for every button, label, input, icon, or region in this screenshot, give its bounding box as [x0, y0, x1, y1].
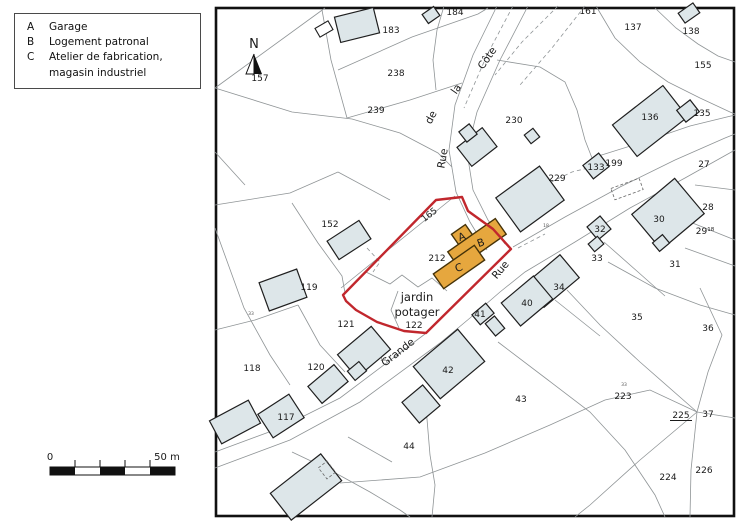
parcel-label-239: 239 [367, 106, 384, 116]
parcel-label-37: 37 [702, 410, 713, 420]
legend-label: Atelier de fabrication, magasin industri… [49, 50, 192, 80]
parcel-label-183: 183 [382, 26, 399, 36]
parcel-label-212: 212 [428, 254, 445, 264]
parcel-label-223: 223 [614, 392, 631, 402]
parcel-label-117: 117 [277, 413, 294, 423]
north-label: N [249, 37, 259, 52]
parcel-label-226: 226 [695, 466, 712, 476]
legend-item-garage: A Garage [27, 20, 192, 35]
parcel-label-152: 152 [321, 220, 338, 230]
parcel-label-27: 27 [698, 160, 709, 170]
tiny-label-33: 33 [248, 311, 254, 317]
parcel-label-238: 238 [387, 69, 404, 79]
parcel-label-122: 122 [405, 321, 422, 331]
parcel-label-224: 224 [659, 473, 676, 483]
parcel-label-30: 30 [653, 215, 665, 225]
legend-key: B [27, 35, 49, 50]
parcel-label-41: 41 [474, 310, 485, 320]
legend-label: Garage [49, 20, 192, 35]
parcel-label-138: 138 [682, 27, 699, 37]
legend-key: A [27, 20, 49, 35]
legend: A Garage B Logement patronal C Atelier d… [14, 13, 201, 89]
parcel-label-36: 36 [702, 324, 714, 334]
parcel-label-33: 33 [591, 254, 602, 264]
scale-start-label: 0 [47, 452, 53, 463]
parcel-label-34: 34 [553, 283, 565, 293]
parcel-label-28: 28 [702, 203, 714, 213]
legend-label: Logement patronal [49, 35, 192, 50]
parcel-label-40: 40 [521, 299, 533, 309]
parcel-label-184: 184 [446, 8, 463, 18]
tiny-label-33: 33 [621, 382, 627, 388]
tiny-label-18: 18 [380, 357, 386, 363]
tiny-label-18: 18 [543, 223, 549, 229]
parcel-label-229: 229 [548, 174, 565, 184]
parcel-label-120: 120 [307, 363, 324, 373]
parcel-label-225: 225 [672, 411, 689, 421]
parcel-label-133: 133 [587, 163, 604, 173]
scale-bar-segment [50, 467, 75, 475]
scale-bar-segment [100, 467, 125, 475]
parcel-label-135: 135 [693, 109, 710, 119]
parcel-label-157: 157 [251, 74, 268, 84]
parcel-label-43: 43 [515, 395, 526, 405]
parcel-label-136: 136 [641, 113, 658, 123]
parcel-label-121: 121 [337, 320, 354, 330]
parcel-label-35: 35 [631, 313, 642, 323]
parcel-label-230: 230 [505, 116, 522, 126]
area-label-jardin: jardin [400, 290, 434, 304]
parcel-label-31: 31 [669, 260, 680, 270]
parcel-label-44: 44 [403, 442, 415, 452]
parcel-label-155: 155 [694, 61, 711, 71]
parcel-label-118: 118 [243, 364, 260, 374]
parcel-label-119: 119 [300, 283, 317, 293]
legend-item-atelier: C Atelier de fabrication, magasin indust… [27, 50, 192, 80]
parcel-label-42: 42 [442, 366, 453, 376]
scale-bar-segment [150, 467, 175, 475]
parcel-label-137: 137 [624, 23, 641, 33]
area-label-potager: potager [395, 305, 440, 319]
legend-key: C [27, 50, 49, 80]
scale-end-label: 50 m [154, 452, 180, 463]
parcel-label-161: 161 [579, 7, 596, 17]
legend-item-logement: B Logement patronal [27, 35, 192, 50]
parcel-label-32: 32 [594, 225, 605, 235]
parcel-label-199: 199 [605, 159, 622, 169]
